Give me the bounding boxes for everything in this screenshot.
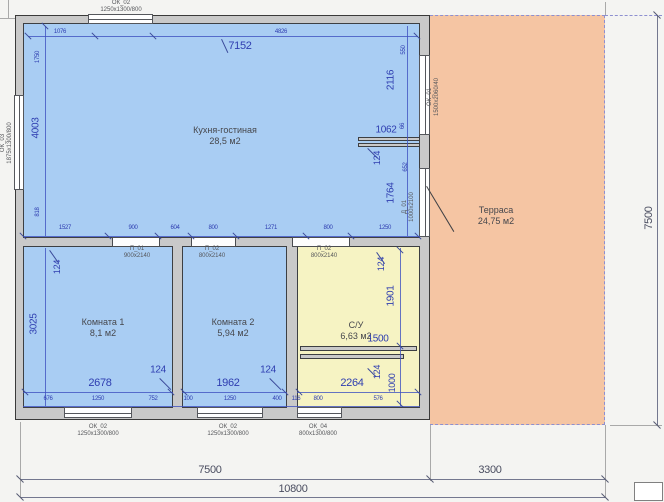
dim-line <box>45 26 46 236</box>
dim-kitchen-left-3: 818 <box>35 207 41 216</box>
terrace-area <box>430 15 605 425</box>
extension-line <box>20 422 21 498</box>
room-label-kitchen: Кухня-гостиная 28,5 м2 <box>193 125 257 147</box>
opening-size: 800x1300/800 <box>299 431 337 438</box>
dim-line <box>23 406 420 407</box>
opening-code: П_02 <box>311 246 337 253</box>
title-block-fragment <box>634 482 663 501</box>
window-left <box>14 95 24 190</box>
room-label-room2: Комната 2 5,94 м2 <box>212 317 255 339</box>
dim-line <box>182 392 287 393</box>
dim-bottom-4: 100 <box>183 396 192 402</box>
door-terrace <box>419 168 430 237</box>
room-label-room1: Комната 1 8,1 м2 <box>82 317 125 339</box>
opening-size: 1000x2100 <box>409 192 416 222</box>
opening-size: 900x2140 <box>124 253 150 260</box>
dim-overall-terrace-width: 3300 <box>478 464 501 476</box>
dim-line <box>297 392 420 393</box>
dim-line <box>23 392 173 393</box>
extension-line <box>610 425 662 426</box>
dim-bottom-2: 1250 <box>92 396 104 402</box>
opening-code: Д_01 <box>402 192 409 222</box>
window-label-bottom-2: ОК_02 1250x1300/800 <box>207 424 248 438</box>
dim-bottom-1: 676 <box>43 396 52 402</box>
window-label-bottom-1: ОК_02 1250x1300/800 <box>77 424 118 438</box>
dim-bathroom-height: 1901 <box>386 285 397 306</box>
dim-room2-width: 1962 <box>216 377 239 389</box>
dim-bottom-6: 400 <box>272 396 281 402</box>
floor-plan-canvas: ОК_02 1250x1300/800 ОК_03 1875x1300/800 … <box>0 0 664 502</box>
dim-line-overall <box>20 497 605 498</box>
dim-kitchen-bottom-4: 800 <box>208 225 217 231</box>
dim-bottom-8: 800 <box>313 396 322 402</box>
dim-bottom-9: 576 <box>373 396 382 402</box>
opening-size: 1875x1300/800 <box>7 122 14 163</box>
window-bottom-3 <box>297 407 342 418</box>
dim-bathroom-shelf: 1500 <box>367 334 388 345</box>
window-bottom-1 <box>64 407 132 418</box>
room-area: 5,94 м2 <box>212 328 255 339</box>
extension-line <box>8 0 9 18</box>
room-name: Комната 1 <box>82 317 125 328</box>
opening-size: 1250x1300/800 <box>77 431 118 438</box>
dim-line-overall <box>657 15 658 425</box>
dim-line <box>45 248 46 406</box>
window-label-bottom-3: ОК_04 800x1300/800 <box>299 424 337 438</box>
dim-bottom-3: 752 <box>148 396 157 402</box>
opening-size: 1250x1300/800 <box>100 7 141 14</box>
dim-overall-main-width: 7500 <box>198 464 221 476</box>
opening-size: 1250x1300/800 <box>207 431 248 438</box>
dim-line-overall <box>20 479 605 480</box>
room-label-terrace: Терраса 24,75 м2 <box>478 205 514 227</box>
dim-line <box>23 236 420 237</box>
dim-bottom-5: 1250 <box>224 396 236 402</box>
opening-code: ОК_02 <box>100 0 141 7</box>
dim-kitchen-bottom-1: 1527 <box>59 225 71 231</box>
door-label-terrace: Д_01 1000x2100 <box>402 192 416 222</box>
kitchen-stub-wall <box>358 143 420 147</box>
dim-kitchen-bottom-6: 800 <box>323 225 332 231</box>
dim-kitchen-right-4: 66 <box>400 123 406 129</box>
window-bottom-2 <box>197 407 263 418</box>
dim-kitchen-bottom-5: 1271 <box>265 225 277 231</box>
window-label-top: ОК_02 1250x1300/800 <box>100 0 141 14</box>
dim-kitchen-top-left: 1076 <box>54 29 66 35</box>
extension-line <box>430 425 431 481</box>
dim-bathroom-width: 2264 <box>340 377 363 389</box>
dim-kitchen-bottom-2: 900 <box>128 225 137 231</box>
dim-kitchen-top-right: 4826 <box>275 29 287 35</box>
dim-kitchen-right-6: 652 <box>403 162 409 171</box>
dim-kitchen-right-2: 2116 <box>386 70 397 90</box>
dim-room2-wall: 124 <box>260 365 276 376</box>
window-label-left: ОК_03 1875x1300/800 <box>0 122 14 163</box>
dim-kitchen-right-1: 550 <box>401 45 407 54</box>
opening-code: П_01 <box>124 246 150 253</box>
room-name: С/У <box>340 320 371 331</box>
dim-kitchen-left-2: 4003 <box>31 117 42 138</box>
dim-kitchen-bottom-7: 1250 <box>379 225 391 231</box>
dim-kitchen-bottom-3: 604 <box>170 225 179 231</box>
room-area: 24,75 м2 <box>478 216 514 227</box>
dim-kitchen-left-1: 1750 <box>35 51 41 63</box>
door-label-p02b: П_02 800x2140 <box>311 246 337 260</box>
dim-kitchen-diagonal: 7152 <box>228 40 251 52</box>
room-name: Кухня-гостиная <box>193 125 257 136</box>
extension-line <box>605 425 606 498</box>
kitchen-stub-wall <box>358 137 420 141</box>
extension-line <box>605 2 606 15</box>
opening-code: ОК_04 <box>299 424 337 431</box>
opening-code: ОК_01 <box>427 78 434 116</box>
room-area: 8,1 м2 <box>82 328 125 339</box>
opening-size: 800x2140 <box>199 253 225 260</box>
dim-line <box>400 248 401 406</box>
dim-bottom-7: 116 <box>292 396 301 402</box>
bathroom-stub-wall <box>300 354 404 359</box>
opening-size: 800x2140 <box>311 253 337 260</box>
dim-kitchen-right-3: 1062 <box>375 125 396 136</box>
room-area: 28,5 м2 <box>193 136 257 147</box>
dim-bathroom-wall-bottom: 124 <box>372 365 382 379</box>
extension-line <box>0 18 15 19</box>
opening-code: ОК_03 <box>0 122 7 163</box>
dim-bathroom-wall-top: 124 <box>376 257 386 271</box>
dim-line <box>28 36 418 37</box>
window-label-terrace: ОК_01 1500x2060/40 <box>427 78 441 116</box>
dim-room1-height: 3025 <box>29 313 40 334</box>
dim-room1-width: 2678 <box>88 377 111 389</box>
door-label-p02a: П_02 800x2140 <box>199 246 225 260</box>
window-top <box>88 14 153 24</box>
room-name: Комната 2 <box>212 317 255 328</box>
dim-room1-wall2: 124 <box>150 365 166 376</box>
opening-size: 1500x2060/40 <box>434 78 441 116</box>
dim-bathroom-niche: 1000 <box>387 374 397 393</box>
dim-kitchen-right-5: 124 <box>372 151 382 165</box>
opening-code: ОК_02 <box>207 424 248 431</box>
room-name: Терраса <box>478 205 514 216</box>
dim-room1-wall: 124 <box>52 260 62 274</box>
opening-code: ОК_02 <box>77 424 118 431</box>
dim-overall-height: 7500 <box>643 206 655 229</box>
terrace-boundary-extension <box>605 15 662 16</box>
door-label-p01: П_01 900x2140 <box>124 246 150 260</box>
dim-kitchen-right-7: 1764 <box>386 182 397 203</box>
dim-overall-total-width: 10800 <box>278 483 307 495</box>
opening-code: П_02 <box>199 246 225 253</box>
